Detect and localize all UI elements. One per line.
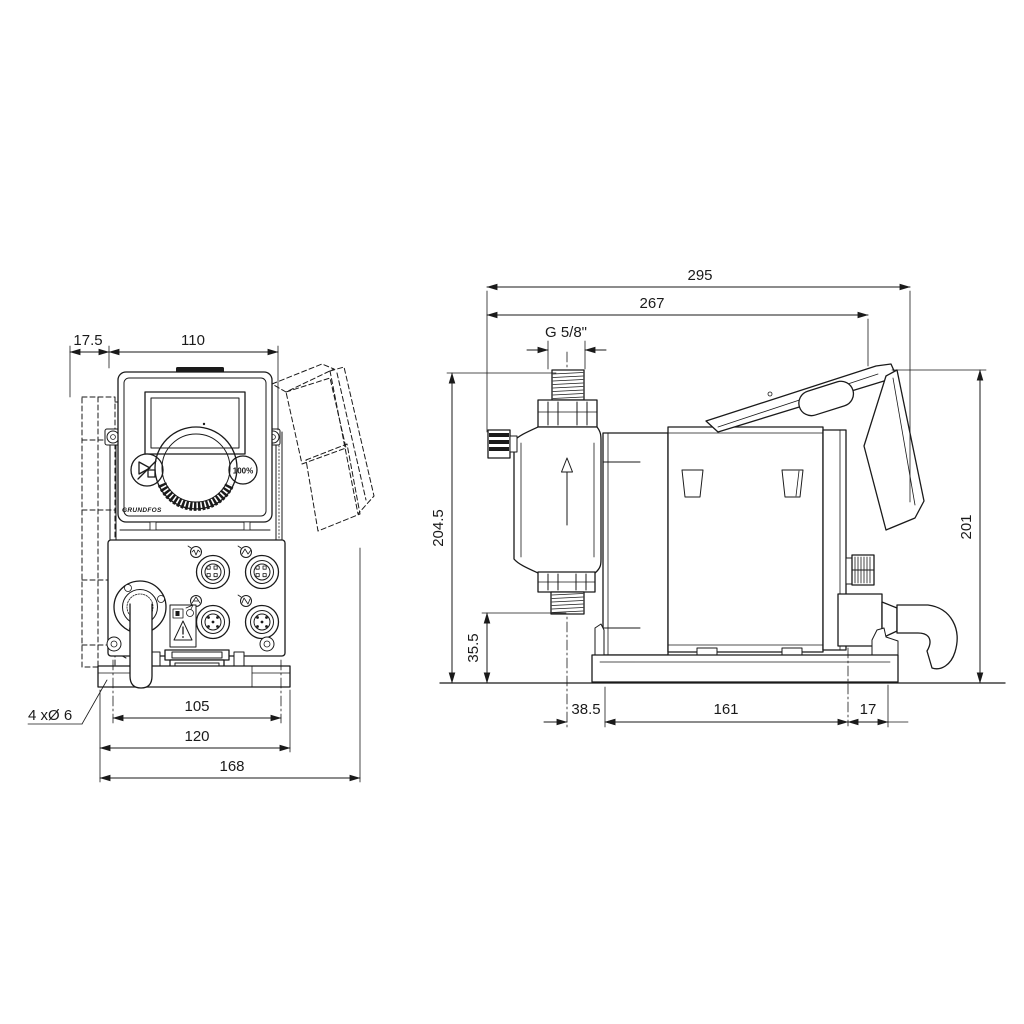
dim-body-depth: 267 [639, 295, 664, 312]
max-capacity-label: 100% [233, 467, 253, 476]
corner-screw-icon [107, 637, 121, 651]
rear-cable [897, 605, 957, 669]
display-dot [203, 423, 205, 425]
inlet-thread [551, 592, 584, 614]
drawing-canvas: 100% GRUNDFOS [0, 0, 1024, 1024]
deaeration-valve-knob [488, 430, 517, 458]
dim-base-length: 161 [713, 701, 738, 718]
motor-housing [668, 427, 846, 652]
mounting-holes-note: 4 xØ 6 [28, 707, 72, 724]
dosing-head [514, 427, 601, 573]
m12-connector [197, 606, 230, 639]
dim-rear-offset: 17 [860, 701, 877, 718]
dim-center-to-base: 38.5 [571, 701, 600, 718]
front-view: 100% GRUNDFOS [82, 364, 374, 723]
hood-clip [682, 470, 703, 497]
dim-overall-height: 201 [958, 514, 975, 539]
outlet-union-nut [538, 400, 597, 427]
dim-thread-size: G 5/8" [545, 324, 587, 341]
dim-overall-depth: 295 [687, 267, 712, 284]
start-stop-button [131, 454, 163, 486]
adapter-flange [603, 433, 668, 655]
hood-clip [782, 470, 803, 497]
hood-panel [864, 370, 924, 530]
side-view [440, 352, 1005, 728]
brand-logo: GRUNDFOS [122, 507, 162, 514]
warning-label [170, 605, 196, 647]
max-capacity-button: 100% [229, 456, 257, 484]
technical-drawing-page: 100% GRUNDFOS [0, 0, 1024, 1024]
outlet-thread [552, 370, 584, 400]
control-panel: 100% GRUNDFOS [118, 367, 272, 530]
base-plate-front [98, 666, 290, 687]
mount-screw-left-icon [107, 431, 119, 443]
dim-height-to-connection: 204.5 [430, 509, 447, 547]
dim-base-width: 120 [184, 728, 209, 745]
hood-open-dashed [272, 364, 374, 531]
dim-connection-clearance: 35.5 [465, 633, 482, 662]
dim-hole-spacing: 105 [184, 698, 209, 715]
dim-wall-offset: 17.5 [73, 332, 102, 349]
power-cable [130, 604, 152, 688]
inlet-union-nut [538, 572, 595, 592]
dim-overall-width: 168 [219, 758, 244, 775]
dim-panel-width: 110 [181, 332, 205, 349]
m12-connector [246, 606, 279, 639]
corner-screw-icon [260, 637, 274, 651]
